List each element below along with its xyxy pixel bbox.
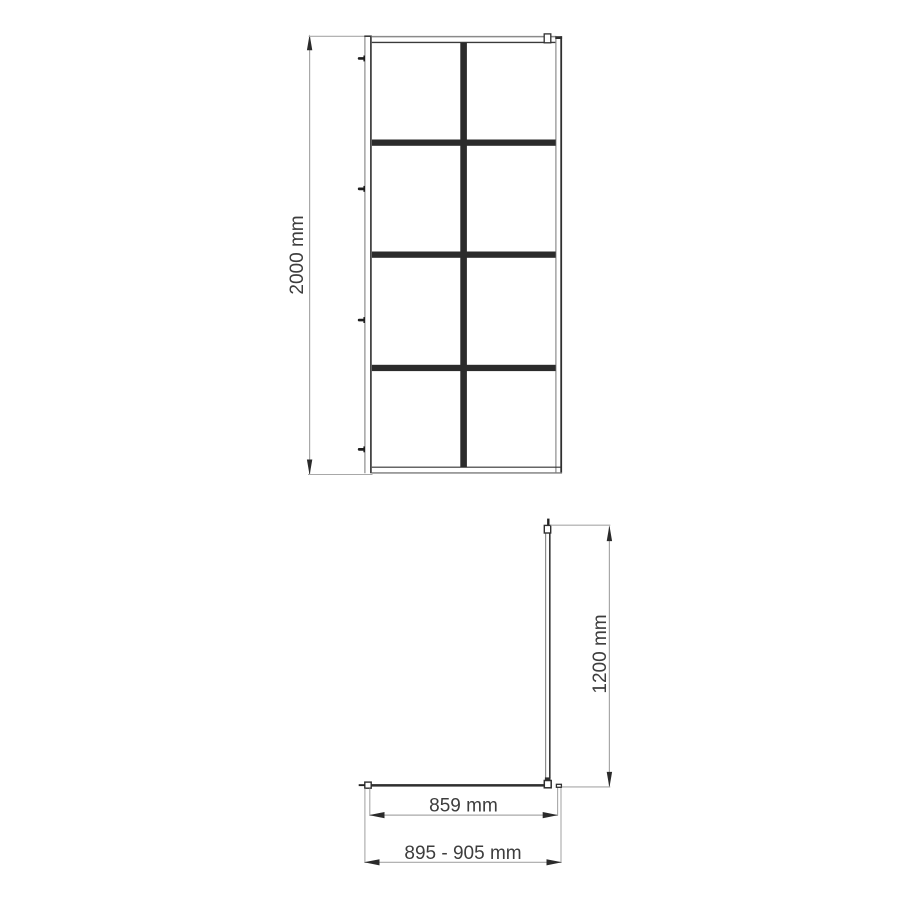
- svg-text:895 - 905 mm: 895 - 905 mm: [404, 843, 521, 864]
- svg-text:859 mm: 859 mm: [429, 796, 498, 817]
- svg-text:1200 mm: 1200 mm: [590, 614, 611, 693]
- svg-text:2000 mm: 2000 mm: [287, 215, 308, 294]
